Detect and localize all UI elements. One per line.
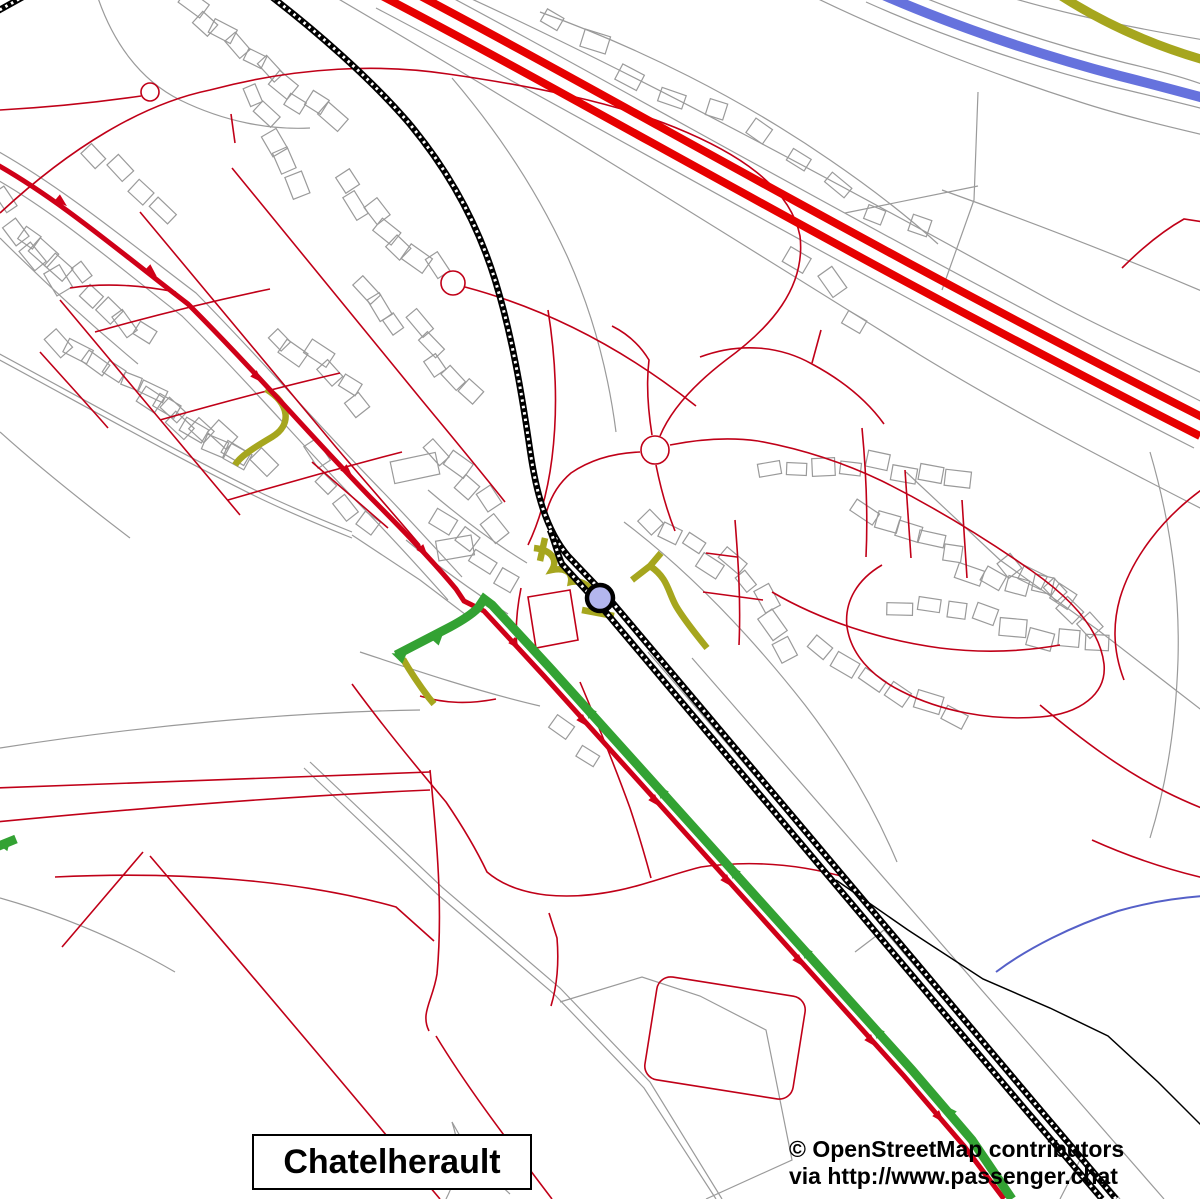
- station-marker[interactable]: [587, 585, 613, 611]
- attribution: © OpenStreetMap contributors via http://…: [789, 1136, 1124, 1190]
- attribution-line1: © OpenStreetMap contributors: [789, 1136, 1124, 1163]
- place-label-text: Chatelherault: [283, 1143, 500, 1182]
- place-label-box: Chatelherault: [252, 1134, 532, 1190]
- route-red-band: [0, 163, 1004, 1199]
- map-stage: Chatelherault © OpenStreetMap contributo…: [0, 0, 1200, 1199]
- map-canvas[interactable]: [0, 0, 1200, 1199]
- route-direction-arrows: [0, 194, 957, 1125]
- attribution-line2: via http://www.passenger.chat: [789, 1163, 1124, 1190]
